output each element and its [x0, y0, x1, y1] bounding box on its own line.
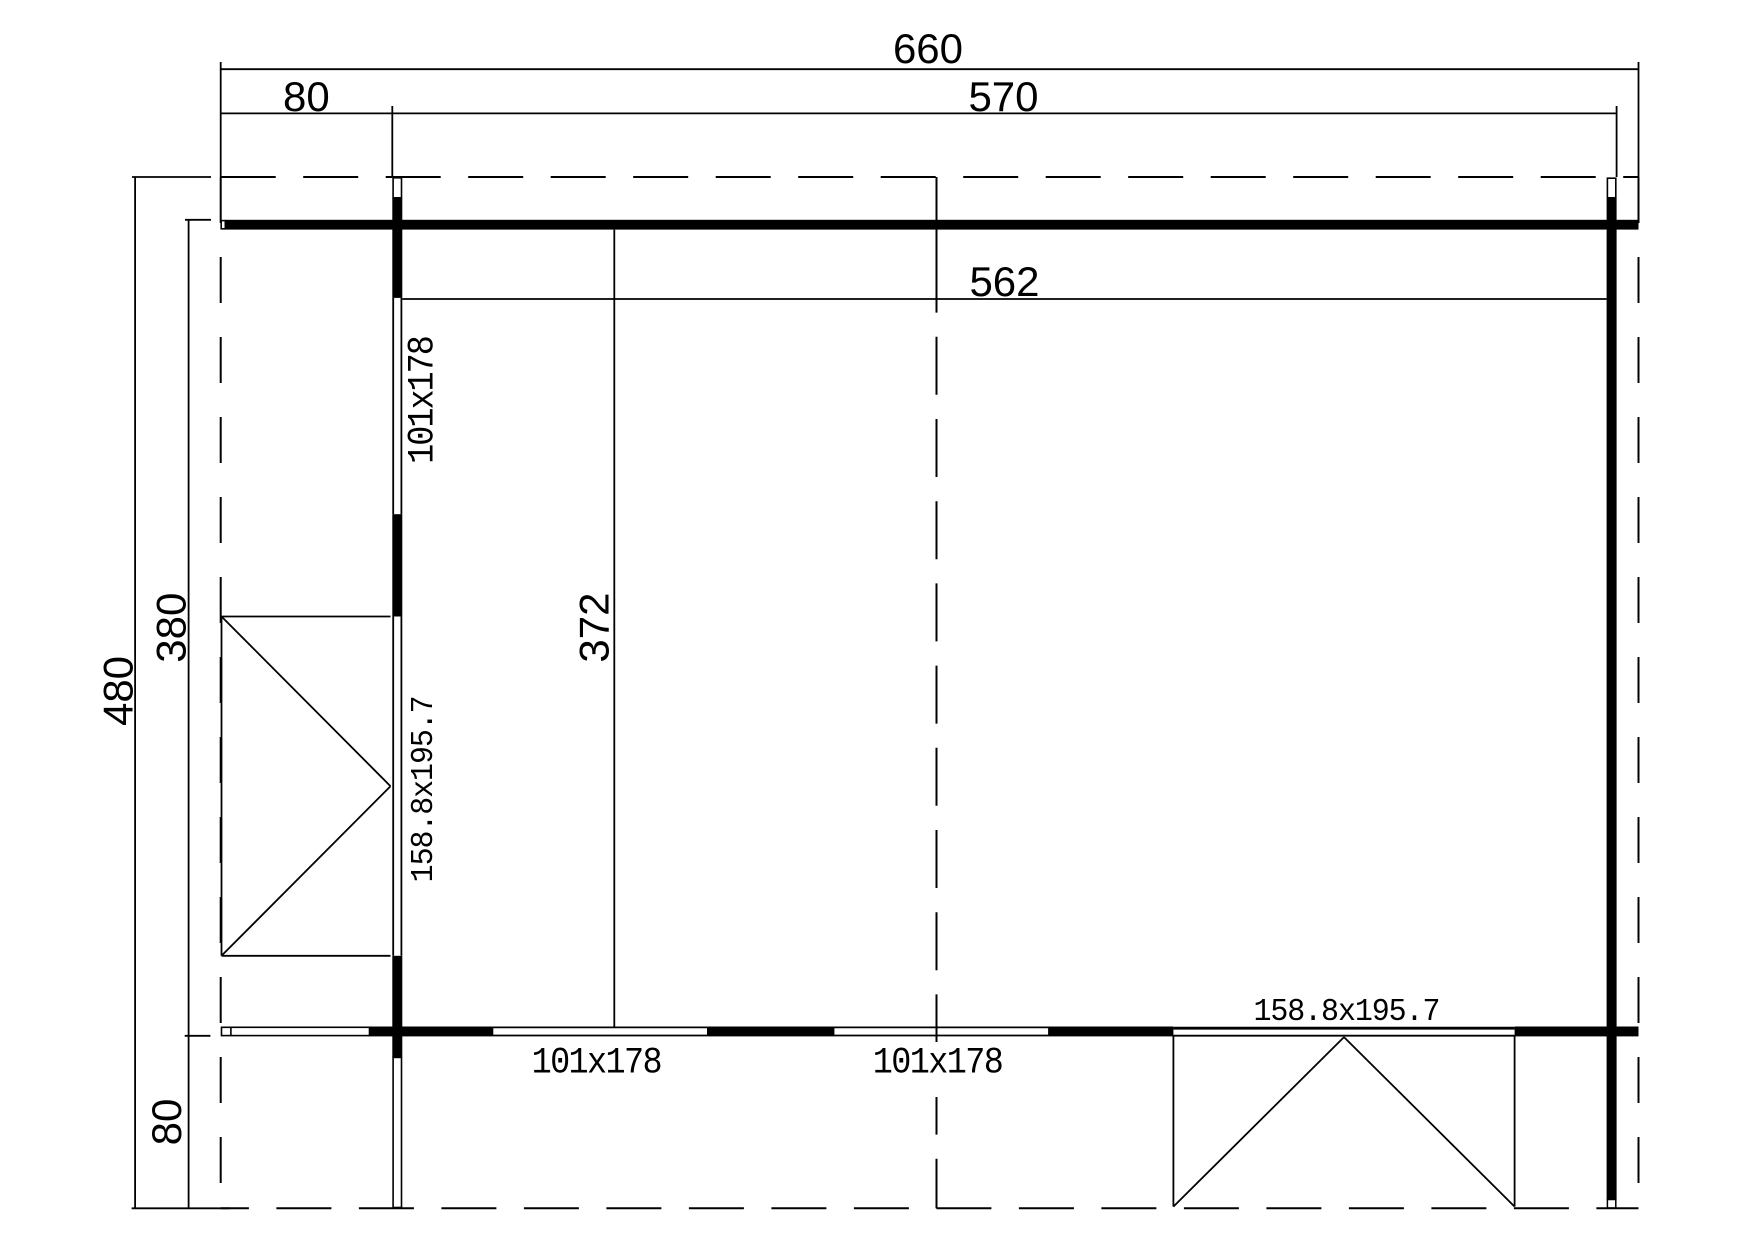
svg-text:101x178: 101x178	[532, 1041, 661, 1084]
svg-text:480: 480	[94, 656, 141, 726]
svg-text:372: 372	[571, 593, 618, 663]
svg-text:158.8x195.7: 158.8x195.7	[406, 696, 442, 882]
svg-text:80: 80	[143, 1099, 190, 1146]
svg-text:80: 80	[283, 73, 330, 120]
svg-text:380: 380	[148, 593, 195, 663]
svg-text:101x178: 101x178	[873, 1041, 1002, 1084]
svg-text:158.8x195.7: 158.8x195.7	[1253, 994, 1439, 1030]
svg-text:562: 562	[969, 258, 1039, 305]
svg-text:101x178: 101x178	[401, 337, 444, 464]
svg-text:660: 660	[893, 25, 963, 72]
svg-text:570: 570	[968, 73, 1038, 120]
